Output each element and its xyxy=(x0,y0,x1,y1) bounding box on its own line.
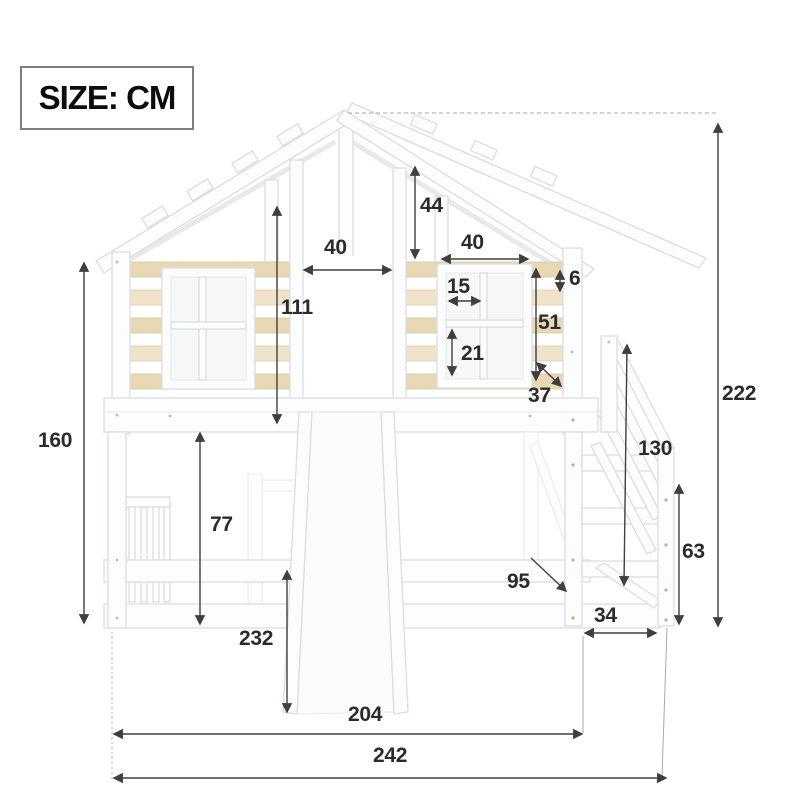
dim-label-stair-side-height: 63 xyxy=(682,541,705,562)
dim-label-door-width: 40 xyxy=(324,237,347,258)
dim-label-window-width: 40 xyxy=(461,232,484,253)
staircase xyxy=(582,336,674,626)
rear-post xyxy=(248,474,262,604)
dim-label-stair-rail-length: 130 xyxy=(638,438,672,459)
headboard-baluster xyxy=(153,507,159,602)
dim-label-total-length: 242 xyxy=(373,745,407,766)
stair-newel-post xyxy=(601,336,617,432)
dim-label-wall-height: 111 xyxy=(281,297,313,318)
size-unit-box: SIZE: CM xyxy=(20,66,194,130)
dim-label-window-pane-height: 21 xyxy=(461,343,484,364)
left-window xyxy=(162,268,255,389)
slide-surface xyxy=(297,412,394,714)
door-post-right xyxy=(393,168,406,420)
dim-label-depth: 232 xyxy=(239,628,273,649)
window-mullion-horizontal xyxy=(446,320,523,327)
dim-label-under-bed-clearance: 77 xyxy=(210,514,233,535)
door-post-left xyxy=(290,160,303,420)
dim-label-left-height: 160 xyxy=(38,430,72,451)
dim-label-window-height: 51 xyxy=(538,312,561,333)
window-mullion-horizontal xyxy=(171,322,246,329)
dim-label-slat-offset: 37 xyxy=(528,385,551,406)
stair-side-rail xyxy=(658,448,674,626)
dim-label-bed-width: 95 xyxy=(507,571,530,592)
dim-label-total-height: 222 xyxy=(722,383,756,404)
extension-line-stair-base xyxy=(662,628,667,777)
headboard-baluster xyxy=(141,507,147,602)
front-leg-right xyxy=(565,432,582,626)
stair-step xyxy=(582,508,658,524)
dim-label-frame-length: 204 xyxy=(348,704,382,725)
headboard-baluster xyxy=(164,507,170,602)
dim-label-stair-depth: 34 xyxy=(594,605,617,626)
dimension-diagram: SIZE: CM 44 40 40 15 21 51 6 37 111 160 … xyxy=(0,0,800,800)
gable-stud xyxy=(265,180,278,262)
dim-label-gable-height: 44 xyxy=(420,195,443,216)
door-opening xyxy=(303,256,393,420)
front-leg-left xyxy=(108,432,126,628)
headboard-rail xyxy=(126,497,170,507)
dim-label-slat-thickness: 6 xyxy=(569,268,580,289)
headboard-baluster xyxy=(129,507,135,602)
slide xyxy=(283,412,408,714)
dim-label-window-pane-width: 15 xyxy=(447,276,470,297)
roof-front-rafter-left xyxy=(96,110,352,273)
